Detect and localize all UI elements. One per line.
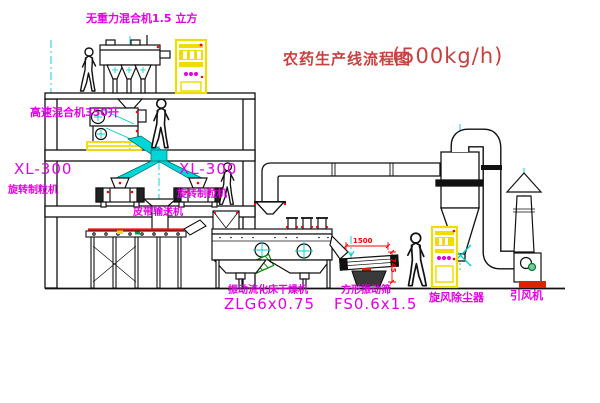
induced-draft-fan — [514, 253, 546, 288]
fluid-bed-dryer — [212, 211, 354, 288]
exhaust-duct — [254, 163, 440, 214]
granulator-left — [96, 178, 144, 207]
control-cabinet-1 — [176, 40, 206, 93]
indicator-dot — [200, 44, 203, 47]
worker-second-floor — [152, 99, 169, 148]
cabinet-buttons — [437, 256, 451, 260]
label-xl300-left: XL-300 — [14, 162, 72, 177]
label-gravity-mixer: 无重力混合机1.5 立方 — [86, 13, 197, 24]
label-granulator-left: 旋转制粒机 — [8, 186, 58, 196]
fan-motor — [529, 264, 536, 271]
label-belt-conveyor: 皮带输送机 — [133, 208, 183, 218]
label-speed-mixer: 高速混合机350升 — [30, 107, 119, 118]
label-screen-model: FS0.6x1.5 — [334, 297, 417, 312]
dim-screen-length: 1500 — [353, 238, 372, 245]
label-dryer-model: ZLG6x0.75 — [224, 297, 315, 312]
label-xl300-right: XL-300 — [179, 162, 237, 177]
indicator-dot — [453, 230, 456, 233]
worker-ground-floor — [408, 233, 426, 285]
label-fan: 引风机 — [510, 290, 543, 301]
control-cabinet-2 — [432, 227, 457, 287]
diagram-title-capacity: (500kg/h) — [392, 46, 503, 67]
belt-conveyor — [86, 220, 206, 288]
dim-screen-height: 745 — [389, 258, 396, 273]
cad-flow-diagram: 农药生产线流程图 (500kg/h) 无重力混合机1.5 立方 高速混合机350… — [0, 0, 600, 403]
exhaust-stack — [507, 173, 541, 264]
label-granulator-right: 旋转制粒机 — [177, 190, 227, 200]
cabinet-buttons — [184, 72, 198, 76]
worker-top-floor — [81, 48, 96, 91]
label-cyclone: 旋风除尘器 — [429, 292, 484, 303]
